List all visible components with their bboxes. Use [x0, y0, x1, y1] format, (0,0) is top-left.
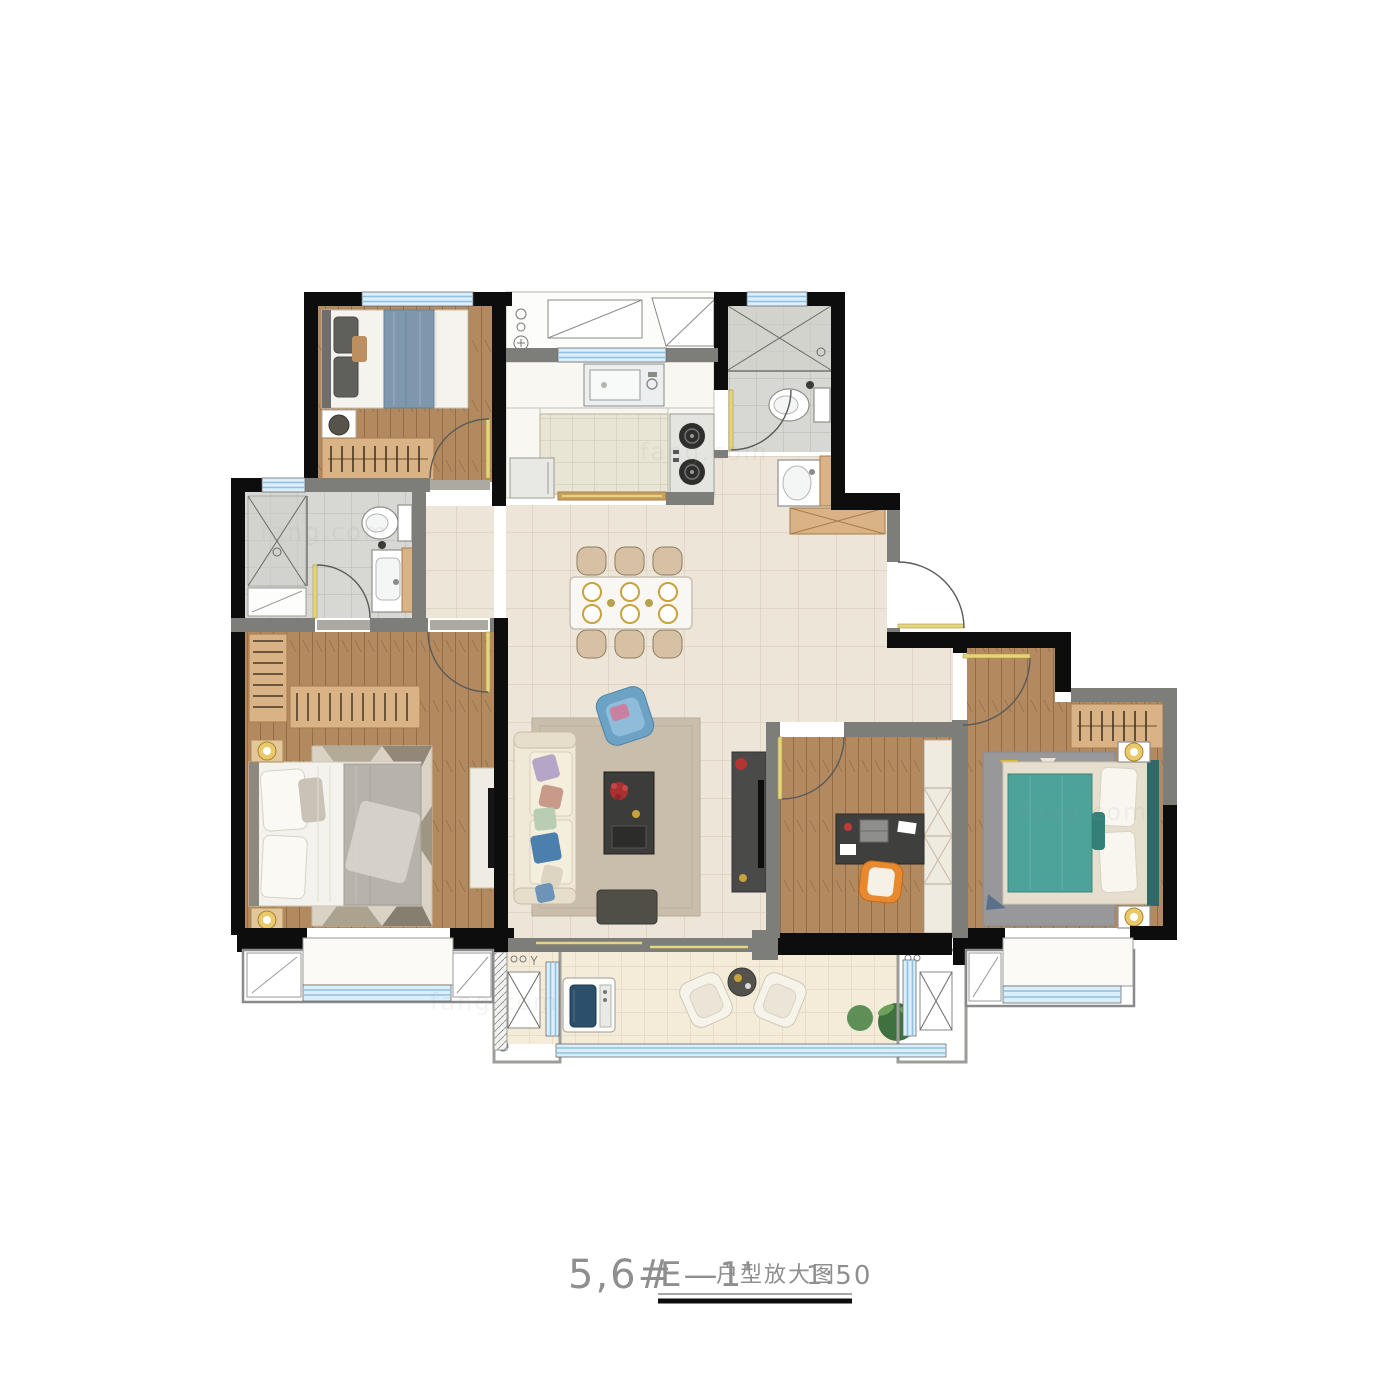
master-bed-headboard — [249, 762, 259, 906]
balcony-railing — [556, 1044, 946, 1057]
entry-foyer — [790, 508, 885, 534]
washbasin-icon — [783, 466, 811, 500]
building-number: 5,6# — [568, 1252, 673, 1298]
side-table — [728, 968, 756, 996]
pillow — [260, 835, 307, 899]
svg-text:fang.com: fang.com — [1020, 798, 1149, 826]
desk-chair — [858, 860, 904, 904]
kitchen — [506, 362, 714, 500]
bed2-blanket — [384, 310, 434, 408]
corridor-floor — [426, 506, 494, 618]
bed3-blanket — [1008, 774, 1092, 892]
bed3-headboard — [1147, 760, 1159, 906]
plan-scale: 1:50 — [806, 1261, 872, 1291]
master-closet-shelf — [290, 686, 420, 728]
floor-plan-drawing: fang.com fang.com fang.com fang.com 5,6#… — [0, 0, 1392, 1400]
bench — [597, 890, 657, 924]
kitchen-window — [558, 348, 666, 362]
svg-text:fang.com: fang.com — [640, 438, 769, 466]
tv-icon — [488, 788, 494, 868]
flowers-icon — [735, 758, 747, 770]
bed2-cushion — [352, 336, 367, 362]
cushion — [298, 777, 326, 823]
bed2-headboard — [322, 310, 331, 408]
paper — [840, 844, 856, 855]
plant-icon — [847, 1005, 873, 1031]
svg-text:fang.com: fang.com — [430, 988, 559, 1016]
bathroom2-window — [747, 292, 807, 306]
toilet-tank — [814, 388, 830, 422]
plant-icon — [329, 415, 349, 435]
washbasin-icon — [376, 558, 400, 600]
kitchen-cabinet — [510, 458, 554, 498]
toilet-tank — [398, 505, 412, 541]
bathroom1-window — [262, 478, 305, 492]
master-wardrobe — [249, 634, 287, 722]
tv-icon — [758, 780, 764, 868]
dining-area — [570, 547, 692, 658]
svg-text:fang.com: fang.com — [260, 518, 389, 546]
bed2-pillow — [334, 357, 358, 397]
cup-icon — [844, 823, 852, 831]
bedroom2-window — [362, 292, 473, 306]
floor-plan-page: fang.com fang.com fang.com fang.com 5,6#… — [0, 0, 1392, 1400]
